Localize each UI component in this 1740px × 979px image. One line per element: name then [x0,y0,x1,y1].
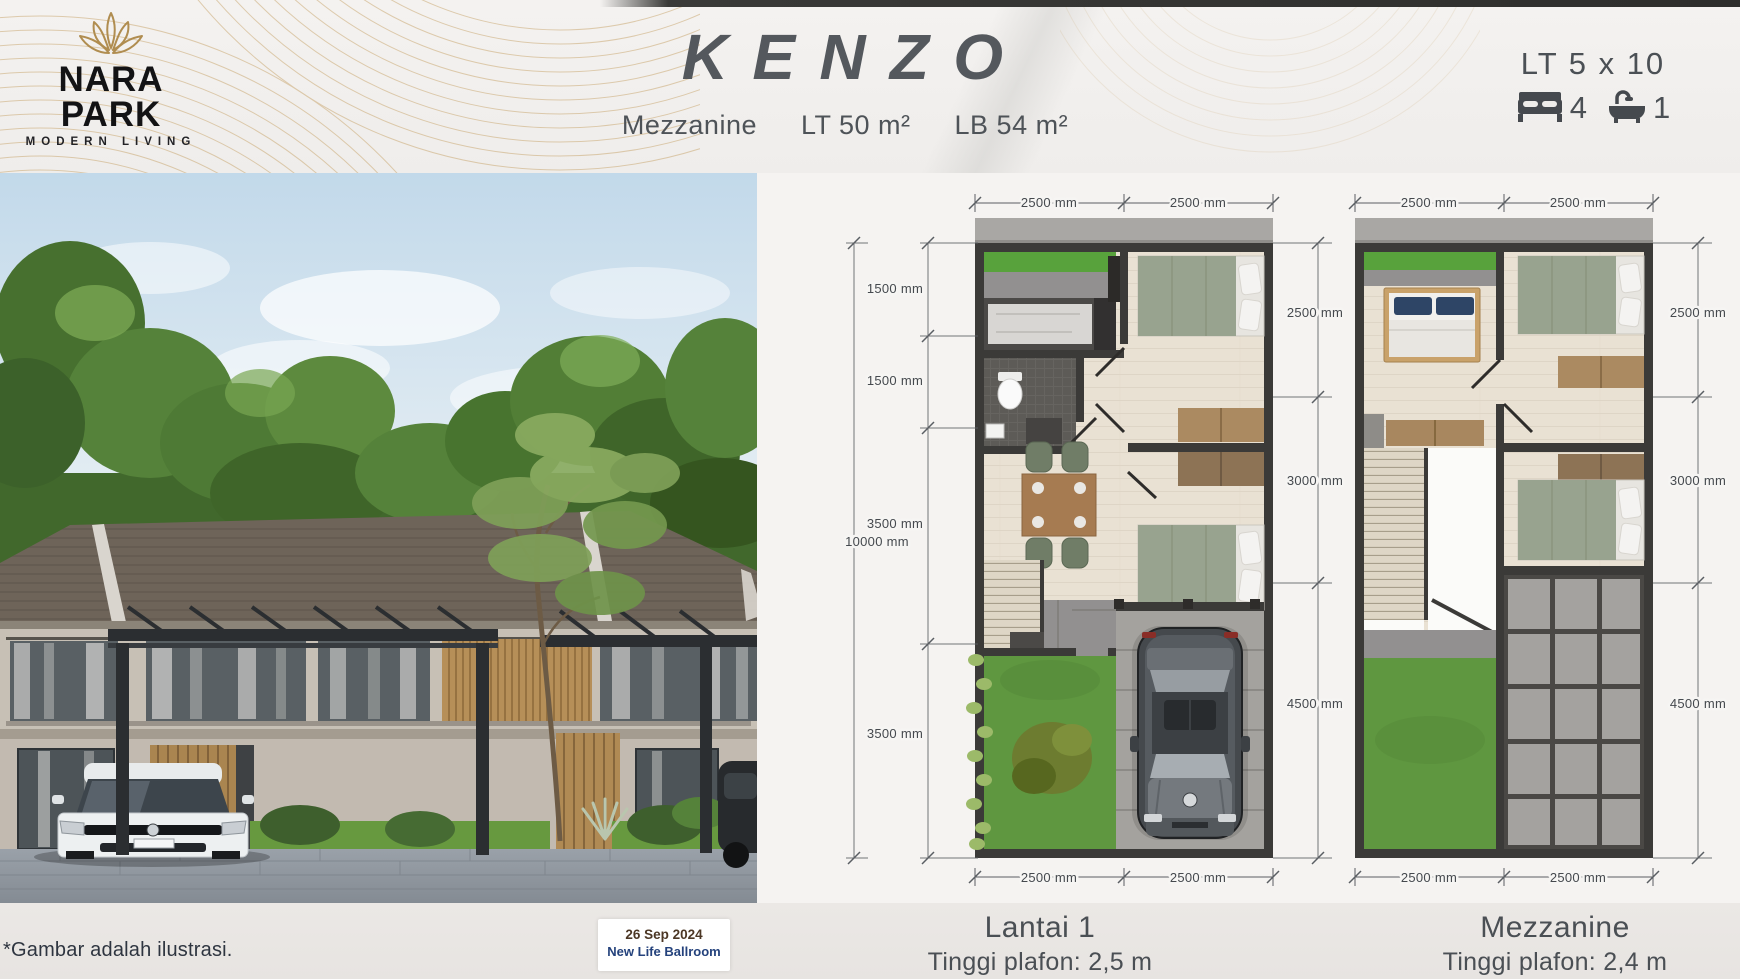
plan-ceiling-height: Tinggi plafon: 2,4 m [1405,948,1705,977]
subtitle-lt: LT 50 m² [801,110,911,141]
brand-tagline: MODERN LIVING [5,136,217,148]
dim-label: 2500 mm [1021,195,1077,210]
plan-label-mezzanine: Mezzanine Tinggi plafon: 2,4 m [1405,911,1705,977]
plan-name: Mezzanine [1405,911,1705,945]
stairs [984,560,1044,656]
brand-logo: NARA PARK MODERN LIVING [5,10,217,148]
bathroom-spec: 1 [1607,90,1670,123]
bedroom-5 [1518,480,1644,560]
dim-label: 3000 mm [1287,473,1343,488]
car-top-view [1130,626,1250,840]
dim-label: 2500 mm [1670,305,1726,320]
dim-label: 2500 mm [1550,870,1606,885]
house-render [0,173,757,903]
subtitle-lb: LB 54 m² [955,110,1069,141]
dim-label: 2500 mm [1550,195,1606,210]
disclaimer: *Gambar adalah ilustrasi. [3,939,233,962]
entry-patio [1044,600,1120,656]
bedroom-3 [1384,288,1480,362]
event-badge: 26 Sep 2024 New Life Ballroom [598,919,730,971]
floorplan-mezzanine [1355,218,1653,858]
brand-name: NARA PARK [5,62,217,132]
stairs [1364,448,1496,632]
dim-label: 10000 mm [845,534,909,549]
subtitle-type: Mezzanine [622,110,757,141]
bedroom-1 [1138,256,1264,336]
flyer: NARA PARK MODERN LIVING KENZO Mezzanine … [0,0,1740,979]
dim-label: 3500 mm [867,516,923,531]
bed-icon [1516,90,1564,123]
dim-label: 1500 mm [867,281,923,296]
floor-plans: 2500 mm 2500 mm 2500 mm 2500 mm 1500 mm … [820,180,1740,905]
tv-console [1108,256,1120,302]
front-garden [966,654,1116,850]
event-date: 26 Sep 2024 [598,927,730,943]
dim-label: 2500 mm [1401,195,1457,210]
dim-label: 2500 mm [1170,195,1226,210]
dim-label: 4500 mm [1670,696,1726,711]
bedroom-spec: 4 [1516,90,1587,123]
dim-label: 1500 mm [867,373,923,388]
dim-label: 4500 mm [1287,696,1343,711]
specs: LT 5 x 10 4 [1478,46,1708,123]
bedroom-2 [1138,525,1264,610]
kitchen [984,298,1116,350]
floorplan-lantai1 [966,218,1273,858]
wood-slat-panel [442,639,592,723]
dim-label: 2500 mm [1287,305,1343,320]
page-title: KENZO [520,24,1170,91]
planter [1364,252,1496,270]
bathtub-icon [1607,90,1647,123]
subtitle: Mezzanine LT 50 m² LB 54 m² [520,110,1170,141]
planter [984,252,1116,272]
dim-label: 3000 mm [1670,473,1726,488]
plan-name: Lantai 1 [890,911,1190,945]
plan-ceiling-height: Tinggi plafon: 2,5 m [890,948,1190,977]
bedroom-4 [1518,256,1644,334]
dim-label: 2500 mm [1170,870,1226,885]
bedroom-count: 4 [1570,92,1587,123]
plan-label-lantai1: Lantai 1 Tinggi plafon: 2,5 m [890,911,1190,977]
footer: *Gambar adalah ilustrasi. 26 Sep 2024 Ne… [0,903,1740,979]
lotus-icon [74,10,148,60]
skylight-grid [1504,575,1644,849]
dim-label: 3500 mm [867,726,923,741]
event-venue: New Life Ballroom [598,943,730,961]
bathroom-count: 1 [1653,92,1670,123]
dim-label: 2500 mm [1021,870,1077,885]
top-edge-bar [600,0,1740,7]
suv [718,761,757,868]
header: NARA PARK MODERN LIVING KENZO Mezzanine … [0,0,1740,173]
lot-size: LT 5 x 10 [1478,46,1708,82]
dim-label: 2500 mm [1401,870,1457,885]
